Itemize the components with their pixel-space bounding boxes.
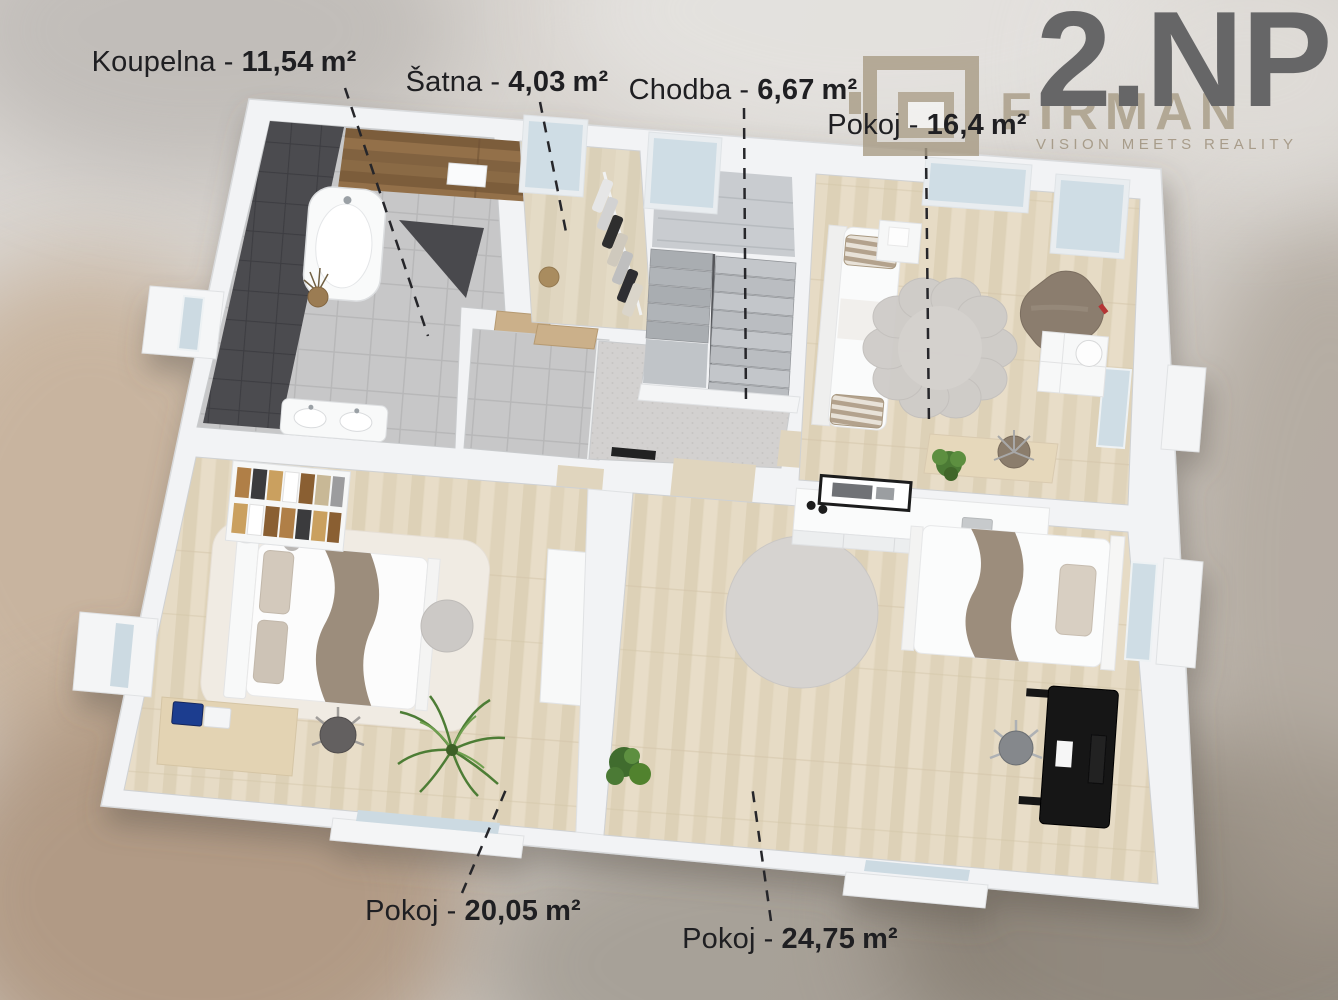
- screenshot-root: FIRMAN VISION MEETS REALITY 2.NP Koupeln…: [0, 0, 1338, 1000]
- monitor: [1088, 735, 1106, 784]
- bed: [223, 538, 440, 715]
- separator: -: [909, 109, 919, 141]
- window: [644, 132, 722, 214]
- label-pokoj-24: Pokoj-24,75m²: [682, 923, 898, 956]
- desk: [157, 697, 298, 776]
- room-area: 11,54: [242, 46, 314, 78]
- label-satna: Šatna-4,03m²: [406, 66, 609, 99]
- pouf: [421, 600, 473, 652]
- area-unit: m²: [862, 923, 898, 955]
- area-unit: m²: [822, 74, 858, 106]
- bookshelf: [225, 461, 350, 552]
- round-rug: [726, 536, 878, 688]
- room-area: 4,03: [508, 66, 565, 98]
- separator: -: [490, 66, 500, 98]
- window: [142, 286, 224, 359]
- picture-frame: [819, 476, 911, 511]
- label-pokoj-20: Pokoj-20,05m²: [365, 895, 581, 928]
- room-pokoj-24: [604, 476, 1203, 908]
- shelf-unit: [1038, 331, 1109, 397]
- separator: -: [739, 74, 749, 106]
- separator: -: [764, 923, 774, 955]
- basket: [539, 267, 559, 287]
- label-pokoj-16: Pokoj-16,4m²: [827, 109, 1027, 142]
- window: [519, 115, 588, 197]
- room-name: Pokoj: [682, 923, 756, 955]
- separator: -: [224, 46, 234, 78]
- area-unit: m²: [991, 109, 1027, 141]
- room-name: Šatna: [406, 66, 483, 98]
- room-area: 20,05: [464, 895, 538, 927]
- area-unit: m²: [573, 66, 609, 98]
- bed: [901, 520, 1125, 670]
- towel-radiator: [447, 163, 487, 187]
- nightstand: [876, 220, 921, 264]
- area-unit: m²: [545, 895, 581, 927]
- area-unit: m²: [321, 46, 357, 78]
- floor-title: 2.NP: [1036, 0, 1330, 141]
- room-area: 24,75: [781, 923, 855, 955]
- label-koupelna: Koupelna-11,54m²: [92, 46, 357, 79]
- flower-rug: [863, 278, 1017, 418]
- room-name: Koupelna: [92, 46, 216, 78]
- room-area: 16,4: [927, 109, 984, 141]
- separator: -: [447, 895, 457, 927]
- room-satna: [519, 115, 652, 349]
- room-name: Pokoj: [827, 109, 901, 141]
- room-name: Pokoj: [365, 895, 439, 927]
- window: [1125, 558, 1203, 668]
- satna-door: [534, 324, 598, 349]
- window: [73, 612, 158, 697]
- double-sink: [280, 398, 388, 442]
- label-chodba: Chodba-6,67m²: [629, 74, 858, 107]
- room-area: 6,67: [757, 74, 814, 106]
- floorplan: [73, 99, 1206, 908]
- room-name: Chodba: [629, 74, 732, 106]
